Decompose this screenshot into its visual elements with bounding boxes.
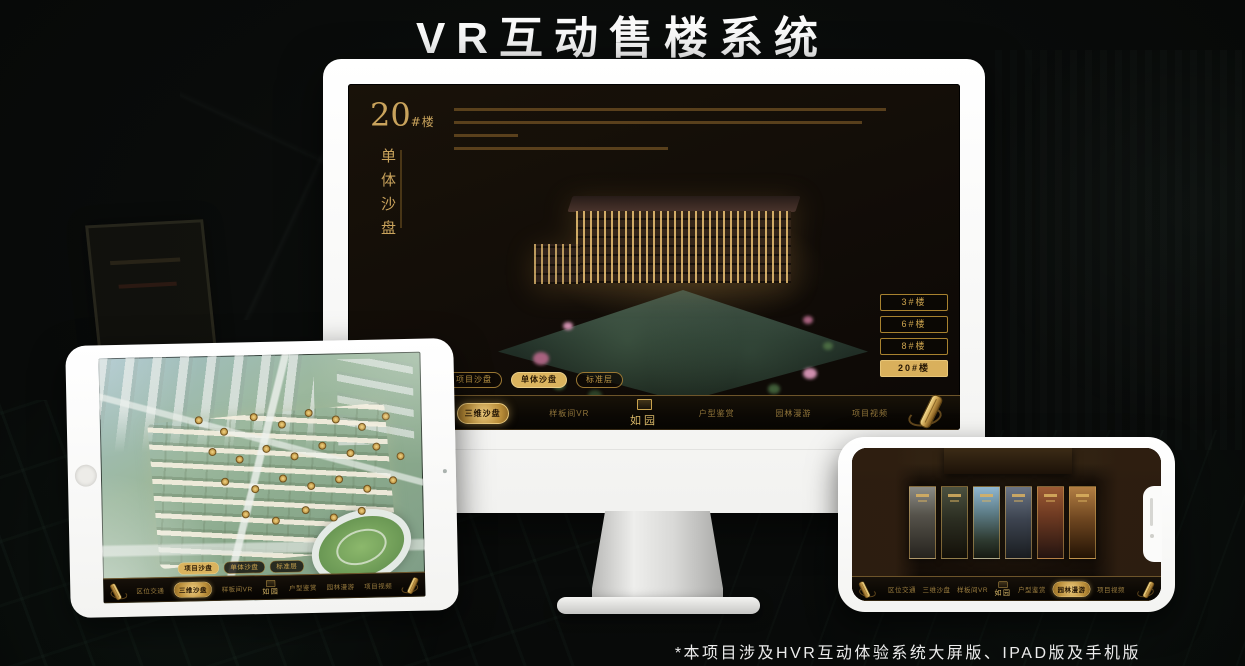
block-number: 20 (370, 96, 411, 134)
floor-button-6[interactable]: 6#楼 (880, 316, 948, 333)
nav-item-showroom-vr[interactable]: 样板间VR (222, 583, 253, 593)
gallery-card[interactable] (973, 486, 1000, 559)
background-plaque (85, 219, 217, 356)
brand-logo-text: 如园 (262, 587, 279, 595)
floor-button-20[interactable]: 20#楼 (880, 360, 948, 377)
block-title: 20#楼 (370, 96, 435, 134)
floor-button-3[interactable]: 3#楼 (880, 294, 948, 311)
gallery-card[interactable] (1037, 486, 1064, 559)
block-subtitle: 单体沙盘 (378, 148, 399, 268)
building-wing (534, 244, 580, 284)
monitor-stand (592, 511, 723, 601)
block-unit: #楼 (411, 115, 435, 129)
gallery-card[interactable] (1069, 486, 1096, 559)
nav-item-floorplans[interactable]: 户型鉴赏 (1018, 584, 1046, 594)
brand-logo-text: 如园 (995, 589, 1012, 597)
block-subtitle-english (400, 150, 402, 228)
scroll-handle-icon[interactable] (916, 394, 946, 428)
background-building-texture (995, 50, 1245, 450)
phone-bottom-nav-bar: 区位交通 三维沙盘 样板间VR 如园 户型鉴赏 园林漫游 项目视频 (852, 576, 1161, 601)
nav-item-showroom-vr[interactable]: 样板间VR (957, 584, 988, 594)
floor-button-8[interactable]: 8#楼 (880, 338, 948, 355)
brand-logo: 如园 (995, 581, 1012, 597)
nav-item-3d-sandtable[interactable]: 三维沙盘 (922, 584, 950, 594)
nav-item-garden-roam[interactable]: 园林漫游 (775, 408, 811, 419)
description-text-lines (454, 108, 886, 160)
tab-project-sandtable[interactable]: 项目沙盘 (178, 562, 219, 575)
nav-item-3d-sandtable[interactable]: 三维沙盘 (174, 581, 212, 597)
phone-device: 区位交通 三维沙盘 样板间VR 如园 户型鉴赏 园林漫游 项目视频 (838, 437, 1175, 612)
phone-speaker (1150, 498, 1153, 526)
scroll-handle-icon[interactable] (857, 581, 872, 598)
nav-item-project-video[interactable]: 项目视频 (364, 581, 392, 591)
gallery-card[interactable] (941, 486, 968, 559)
tablet-nav-overlay: 项目沙盘 单体沙盘 标准层 区位交通 三维沙盘 样板间VR 如园 户型鉴赏 园林… (103, 558, 426, 604)
phone-nav-overlay: 区位交通 三维沙盘 样板间VR 如园 户型鉴赏 园林漫游 项目视频 (852, 576, 1161, 601)
seal-icon (999, 581, 1008, 588)
seal-icon (637, 399, 652, 410)
nav-item-location[interactable]: 区位交通 (888, 584, 916, 594)
phone-notch (1143, 486, 1162, 562)
scroll-handle-icon[interactable] (108, 583, 123, 600)
scroll-bar (918, 393, 944, 430)
nav-item-garden-roam[interactable]: 园林漫游 (1052, 581, 1090, 597)
brand-logo: 如园 (630, 399, 658, 428)
nav-item-project-video[interactable]: 项目视频 (1097, 584, 1125, 594)
gallery-card[interactable] (909, 486, 936, 559)
page-title: VR互动售楼系统 (0, 2, 1245, 66)
nav-item-location[interactable]: 区位交通 (136, 585, 164, 595)
building-facade (576, 211, 791, 283)
tablet-bottom-nav-bar: 区位交通 三维沙盘 样板间VR 如园 户型鉴赏 园林漫游 项目视频 (103, 572, 425, 604)
tab-single-sandtable[interactable]: 单体沙盘 (224, 561, 265, 574)
nav-item-floorplans[interactable]: 户型鉴赏 (289, 582, 317, 592)
panorama-gallery (909, 486, 1096, 559)
seal-icon (266, 580, 275, 587)
nav-item-floorplans[interactable]: 户型鉴赏 (699, 408, 735, 419)
gallery-card[interactable] (1005, 486, 1032, 559)
building-roof (567, 196, 800, 212)
phone-screen: 区位交通 三维沙盘 样板间VR 如园 户型鉴赏 园林漫游 项目视频 (852, 448, 1161, 601)
tablet-home-button (75, 464, 97, 486)
tablet-screen: 项目沙盘 单体沙盘 标准层 区位交通 三维沙盘 样板间VR 如园 户型鉴赏 园林… (98, 352, 425, 604)
monitor-stand-base (557, 597, 760, 614)
nav-item-3d-sandtable[interactable]: 三维沙盘 (457, 403, 509, 424)
tab-single-sandtable[interactable]: 单体沙盘 (511, 372, 567, 388)
building-3d-render[interactable] (576, 196, 791, 300)
nav-item-garden-roam[interactable]: 园林漫游 (326, 581, 354, 591)
footnote-caption: *本项目涉及HVR互动体验系统大屏版、IPAD版及手机版 (675, 639, 1141, 663)
floor-button-group: 3#楼 6#楼 8#楼 20#楼 (880, 294, 948, 377)
scroll-handle-icon[interactable] (405, 577, 420, 594)
view-mode-tabs: 项目沙盘 单体沙盘 标准层 (446, 372, 623, 388)
brand-logo-text: 如园 (630, 414, 658, 427)
tab-project-sandtable[interactable]: 项目沙盘 (446, 372, 502, 388)
scroll-handle-icon[interactable] (1141, 581, 1156, 598)
tab-standard-floor[interactable]: 标准层 (270, 560, 304, 573)
tab-standard-floor[interactable]: 标准层 (576, 372, 623, 388)
interior-gate-beam (944, 448, 1072, 474)
phone-camera (1150, 534, 1154, 538)
promo-canvas: VR互动售楼系统 20#楼 单体沙盘 (0, 0, 1245, 666)
tablet-device: 项目沙盘 单体沙盘 标准层 区位交通 三维沙盘 样板间VR 如园 户型鉴赏 园林… (65, 338, 459, 618)
tablet-camera (443, 469, 447, 473)
brand-logo: 如园 (262, 580, 279, 596)
nav-item-project-video[interactable]: 项目视频 (852, 408, 888, 419)
nav-item-showroom-vr[interactable]: 样板间VR (549, 408, 589, 419)
